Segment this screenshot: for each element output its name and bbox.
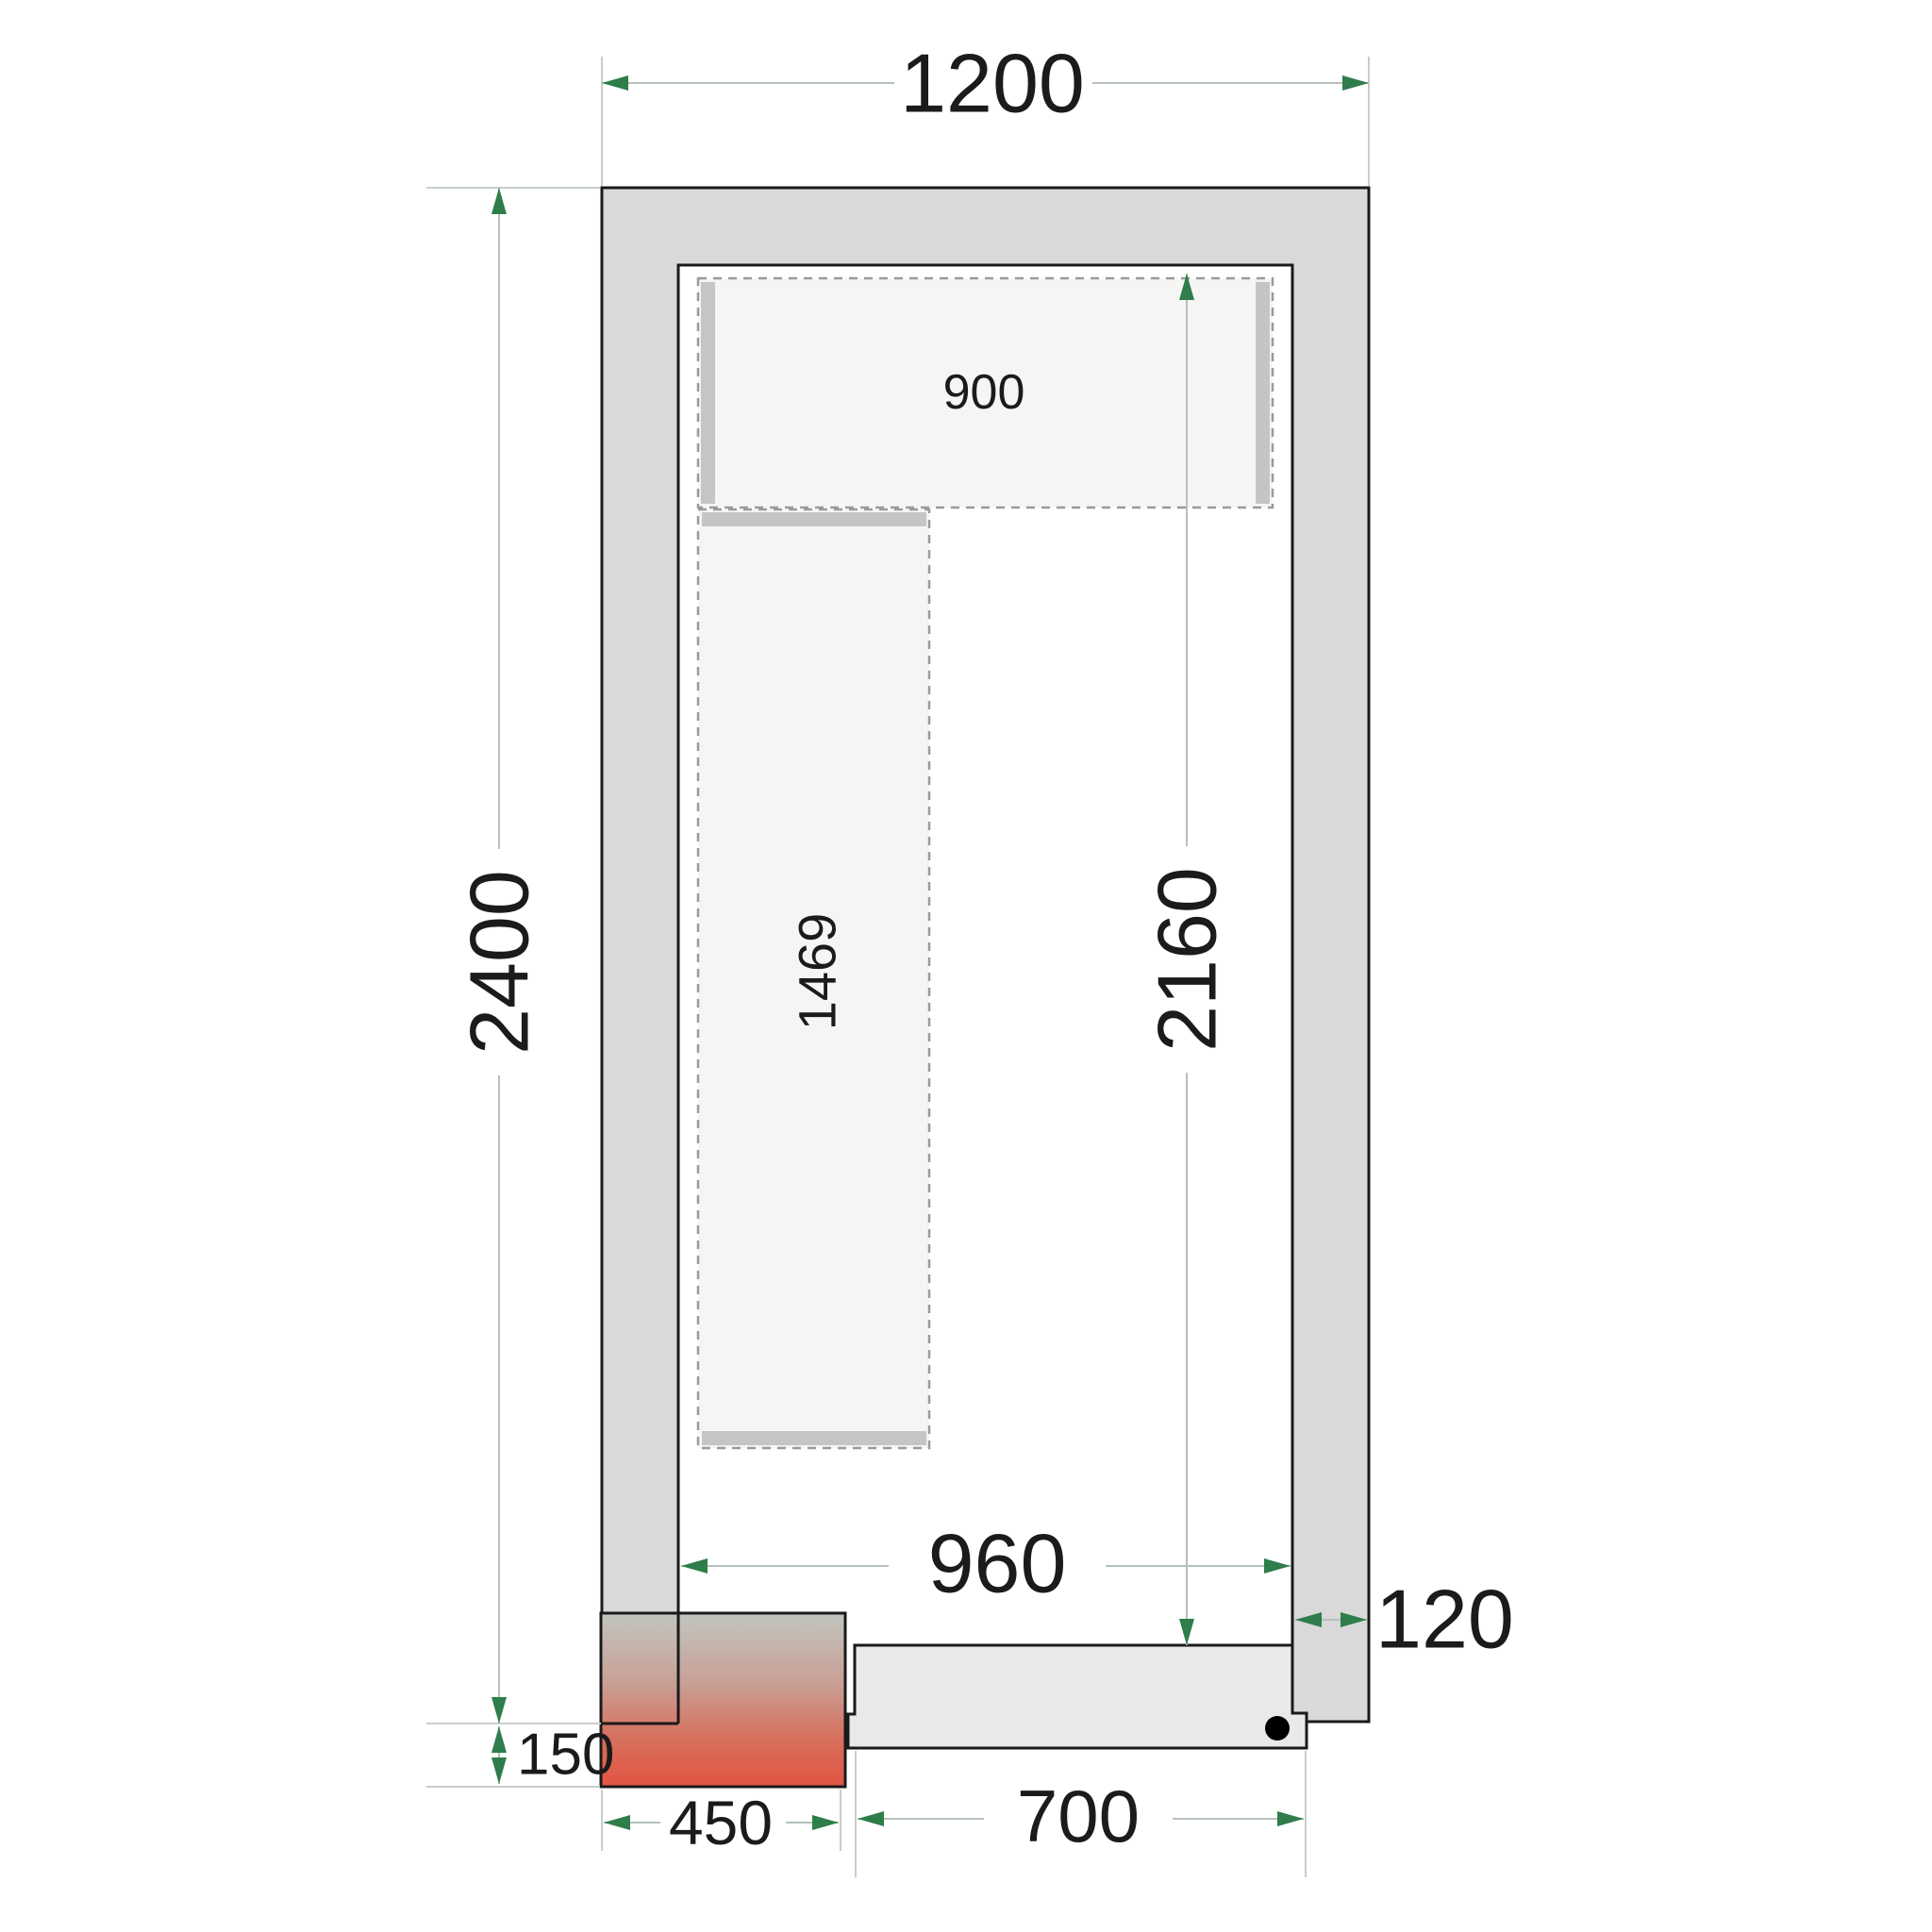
dim-label-unit-protrusion: 150 — [517, 1723, 614, 1788]
door-handle-dot — [1265, 1716, 1290, 1740]
side-shelf-label: 1469 — [788, 913, 847, 1031]
condensing-unit — [601, 1613, 845, 1787]
dim-outer-height: 2400 — [453, 188, 546, 1724]
top-shelf-left-bracket — [701, 282, 715, 504]
dim-label-interior-width: 960 — [928, 1517, 1067, 1610]
dim-outer-width: 1200 — [602, 37, 1369, 130]
dim-label-door-width: 700 — [1017, 1774, 1140, 1857]
dim-label-outer-width: 1200 — [900, 37, 1085, 130]
dim-unit-protrusion: 150 — [499, 1723, 614, 1788]
dim-door-width: 700 — [858, 1774, 1304, 1857]
door-leaf — [848, 1645, 1307, 1748]
top-shelf-label: 900 — [943, 365, 1025, 420]
dim-interior-width: 960 — [681, 1517, 1291, 1610]
side-shelf: 1469 — [698, 509, 929, 1448]
door — [848, 1645, 1307, 1748]
top-shelf-right-bracket — [1256, 282, 1270, 504]
cold-room-floor-plan: 900 1469 1200 2400 — [0, 0, 1932, 1932]
dim-label-unit-width: 450 — [669, 1788, 773, 1857]
dim-unit-width: 450 — [604, 1788, 839, 1857]
dim-label-wall-thickness: 120 — [1375, 1573, 1514, 1666]
floor-plan-canvas: 900 1469 1200 2400 — [0, 0, 1932, 1932]
dim-label-interior-height: 2160 — [1141, 867, 1234, 1052]
dim-label-outer-height: 2400 — [453, 870, 546, 1055]
condensing-unit-block — [601, 1613, 845, 1787]
side-shelf-bottom-bracket — [702, 1431, 926, 1445]
side-shelf-top-bracket — [702, 512, 926, 526]
